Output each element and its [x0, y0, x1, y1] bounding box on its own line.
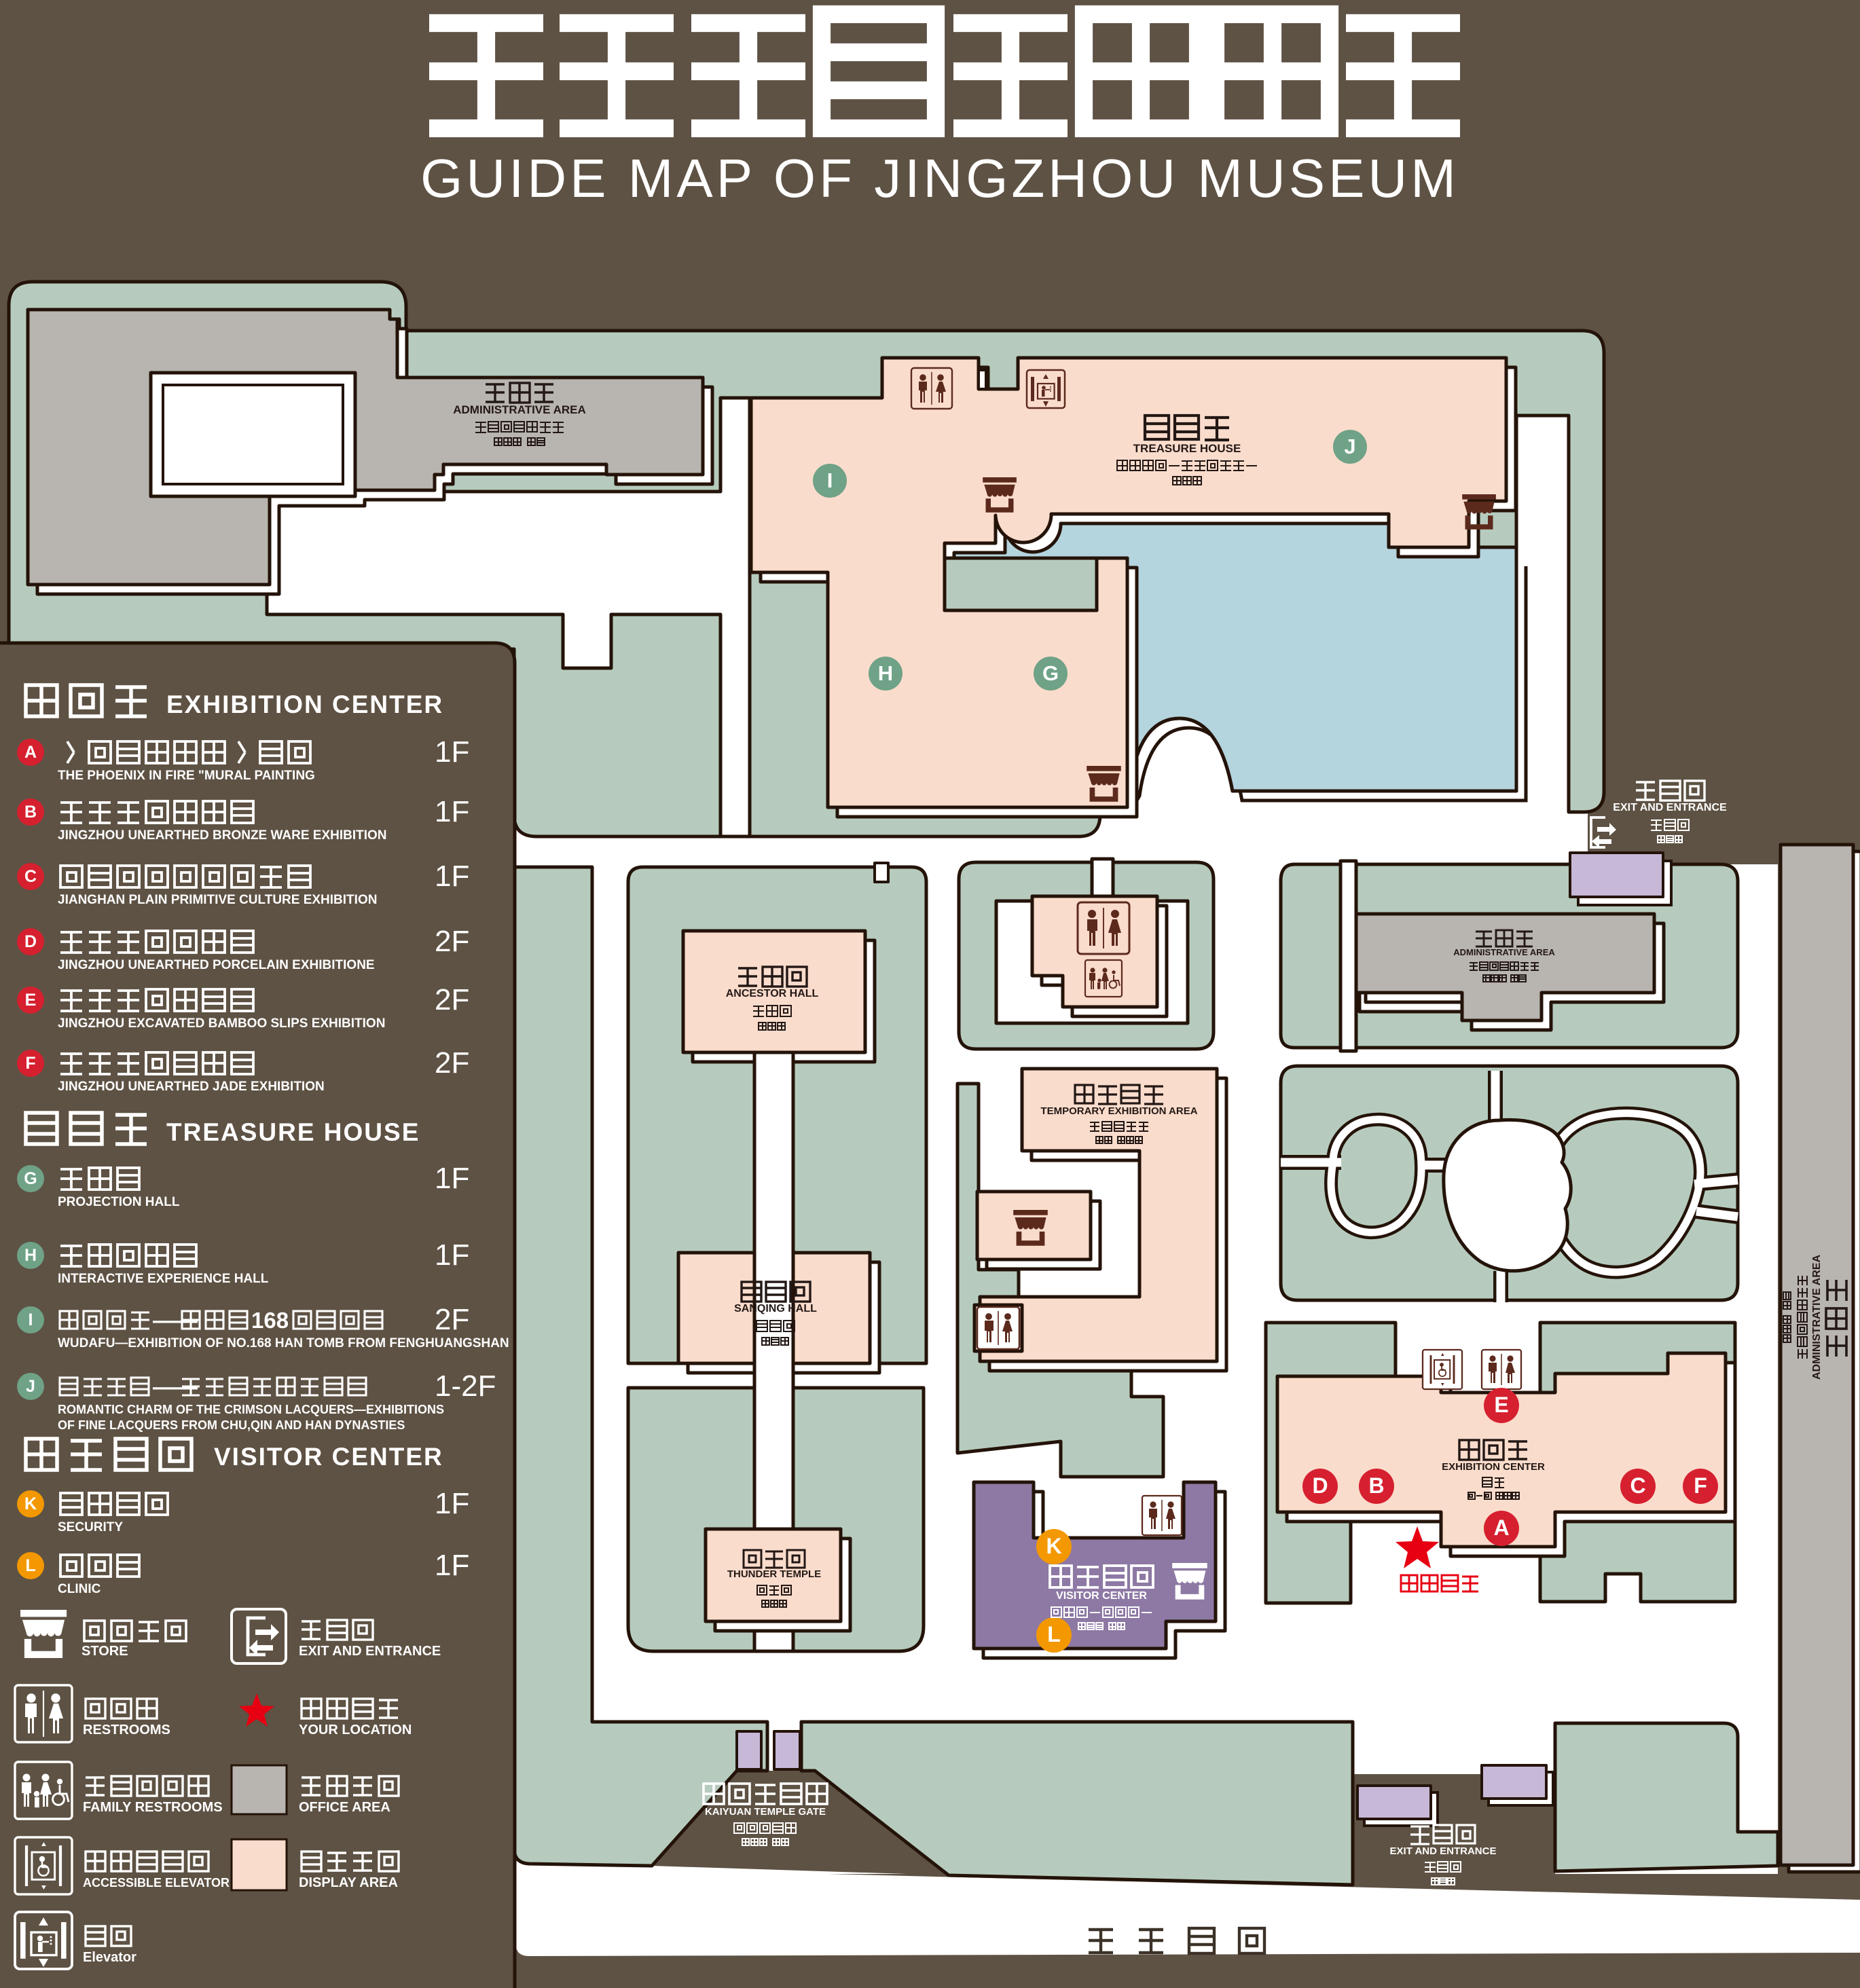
svg-text:C: C — [1630, 1473, 1645, 1498]
svg-text:VISITOR CENTER: VISITOR CENTER — [214, 1443, 443, 1471]
svg-text:EXHIBITION CENTER: EXHIBITION CENTER — [1442, 1461, 1545, 1473]
svg-text:EXIT AND ENTRANCE: EXIT AND ENTRANCE — [299, 1644, 441, 1659]
svg-text:1F: 1F — [435, 735, 469, 769]
svg-text:JIANGHAN PLAIN PRIMITIVE CULTU: JIANGHAN PLAIN PRIMITIVE CULTURE EXHIBIT… — [58, 893, 377, 907]
svg-text:WUDAFU—EXHIBITION OF NO.168 HA: WUDAFU—EXHIBITION OF NO.168 HAN TOMB FRO… — [58, 1336, 509, 1350]
svg-text:JINGZHOU UNEARTHED JADE EXHIBI: JINGZHOU UNEARTHED JADE EXHIBITION — [58, 1080, 325, 1094]
svg-text:Elevator: Elevator — [83, 1950, 136, 1965]
svg-text:1F: 1F — [435, 1549, 469, 1582]
svg-text:KAIYUAN TEMPLE GATE: KAIYUAN TEMPLE GATE — [705, 1806, 826, 1818]
svg-text:L: L — [1047, 1622, 1061, 1646]
svg-text:JINGZHOU UNEARTHED PORCELAIN E: JINGZHOU UNEARTHED PORCELAIN EXHIBITIONE — [58, 958, 375, 972]
svg-text:THE PHOENIX IN FIRE "MURAL PAI: THE PHOENIX IN FIRE "MURAL PAINTING — [58, 769, 315, 783]
svg-text:F: F — [1694, 1473, 1707, 1498]
svg-text:E: E — [25, 991, 37, 1010]
svg-text:STORE: STORE — [81, 1644, 128, 1659]
svg-text:I: I — [827, 468, 833, 492]
svg-text:H: H — [24, 1246, 37, 1265]
svg-text:PROJECTION HALL: PROJECTION HALL — [58, 1195, 180, 1209]
svg-text:1F: 1F — [435, 1162, 469, 1195]
svg-text:TEMPORARY EXHIBITION AREA: TEMPORARY EXHIBITION AREA — [1040, 1105, 1197, 1117]
svg-text:ROMANTIC CHARM OF THE CRIMSON: ROMANTIC CHARM OF THE CRIMSON LACQUERS—E… — [58, 1403, 444, 1416]
svg-text:2F: 2F — [435, 1046, 469, 1080]
svg-text:F: F — [25, 1054, 35, 1073]
svg-text:K: K — [24, 1494, 37, 1513]
svg-text:YOUR LOCATION: YOUR LOCATION — [299, 1723, 412, 1737]
svg-text:ANCESTOR HALL: ANCESTOR HALL — [726, 988, 819, 999]
svg-text:TREASURE HOUSE: TREASURE HOUSE — [166, 1118, 420, 1146]
svg-text:ADMINISTRATIVE AREA: ADMINISTRATIVE AREA — [1453, 947, 1555, 957]
svg-text:1F: 1F — [435, 860, 469, 893]
svg-text:1-2F: 1-2F — [435, 1369, 496, 1403]
svg-text:A: A — [1493, 1515, 1509, 1540]
svg-text:ACCESSIBLE ELEVATOR: ACCESSIBLE ELEVATOR — [83, 1876, 230, 1890]
svg-text:B: B — [1368, 1473, 1384, 1498]
svg-text:INTERACTIVE EXPERIENCE HALL: INTERACTIVE EXPERIENCE HALL — [58, 1272, 269, 1286]
svg-text:D: D — [1312, 1473, 1328, 1498]
svg-text:ADMINISTRATIVE AREA: ADMINISTRATIVE AREA — [1811, 1255, 1823, 1380]
svg-text:A: A — [24, 743, 37, 762]
svg-text:VISITOR CENTER: VISITOR CENTER — [1056, 1590, 1147, 1602]
svg-text:I: I — [29, 1310, 33, 1329]
svg-text:CLINIC: CLINIC — [58, 1582, 101, 1596]
svg-text:G: G — [24, 1169, 37, 1188]
svg-text:FAMILY RESTROOMS: FAMILY RESTROOMS — [83, 1800, 223, 1815]
svg-text:EXHIBITION CENTER: EXHIBITION CENTER — [166, 691, 443, 718]
svg-text:JINGZHOU UNEARTHED BRONZE WARE: JINGZHOU UNEARTHED BRONZE WARE EXHIBITIO… — [58, 828, 387, 843]
svg-text:L: L — [25, 1556, 35, 1575]
svg-text:DISPLAY AREA: DISPLAY AREA — [299, 1875, 398, 1890]
svg-text:1F: 1F — [435, 795, 469, 828]
svg-text:TREASURE HOUSE: TREASURE HOUSE — [1133, 442, 1241, 455]
svg-text:ADMINISTRATIVE AREA: ADMINISTRATIVE AREA — [453, 403, 586, 416]
svg-text:J: J — [1344, 435, 1355, 458]
svg-text:THUNDER TEMPLE: THUNDER TEMPLE — [727, 1568, 821, 1580]
svg-text:EXIT AND ENTRANCE: EXIT AND ENTRANCE — [1390, 1845, 1497, 1857]
svg-text:RESTROOMS: RESTROOMS — [83, 1723, 170, 1737]
svg-text:EXIT AND ENTRANCE: EXIT AND ENTRANCE — [1613, 802, 1727, 813]
svg-text:B: B — [24, 803, 37, 822]
svg-text:GUIDE MAP OF JINGZHOU MUSEUM: GUIDE MAP OF JINGZHOU MUSEUM — [420, 148, 1459, 208]
svg-text:1F: 1F — [435, 1238, 469, 1272]
svg-text:JINGZHOU EXCAVATED BAMBOO SLIP: JINGZHOU EXCAVATED BAMBOO SLIPS EXHIBITI… — [58, 1016, 385, 1031]
svg-text:J: J — [26, 1377, 35, 1396]
svg-text:2F: 2F — [435, 925, 469, 958]
svg-text:K: K — [1046, 1534, 1061, 1558]
svg-text:OFFICE AREA: OFFICE AREA — [299, 1800, 390, 1815]
svg-text:H: H — [878, 661, 893, 685]
svg-text:E: E — [1494, 1393, 1508, 1417]
svg-text:C: C — [24, 867, 37, 886]
svg-text:168: 168 — [251, 1308, 289, 1333]
svg-text:SANQING HALL: SANQING HALL — [734, 1303, 817, 1314]
svg-text:2F: 2F — [435, 983, 469, 1016]
svg-text:2F: 2F — [435, 1303, 469, 1336]
svg-text:G: G — [1042, 661, 1059, 685]
svg-text:OF FINE LACQUERS FROM CHU,QIN: OF FINE LACQUERS FROM CHU,QIN AND HAN DY… — [58, 1418, 405, 1432]
svg-text:1F: 1F — [435, 1487, 469, 1520]
svg-text:SECURITY: SECURITY — [58, 1520, 123, 1534]
svg-text:D: D — [24, 932, 37, 951]
